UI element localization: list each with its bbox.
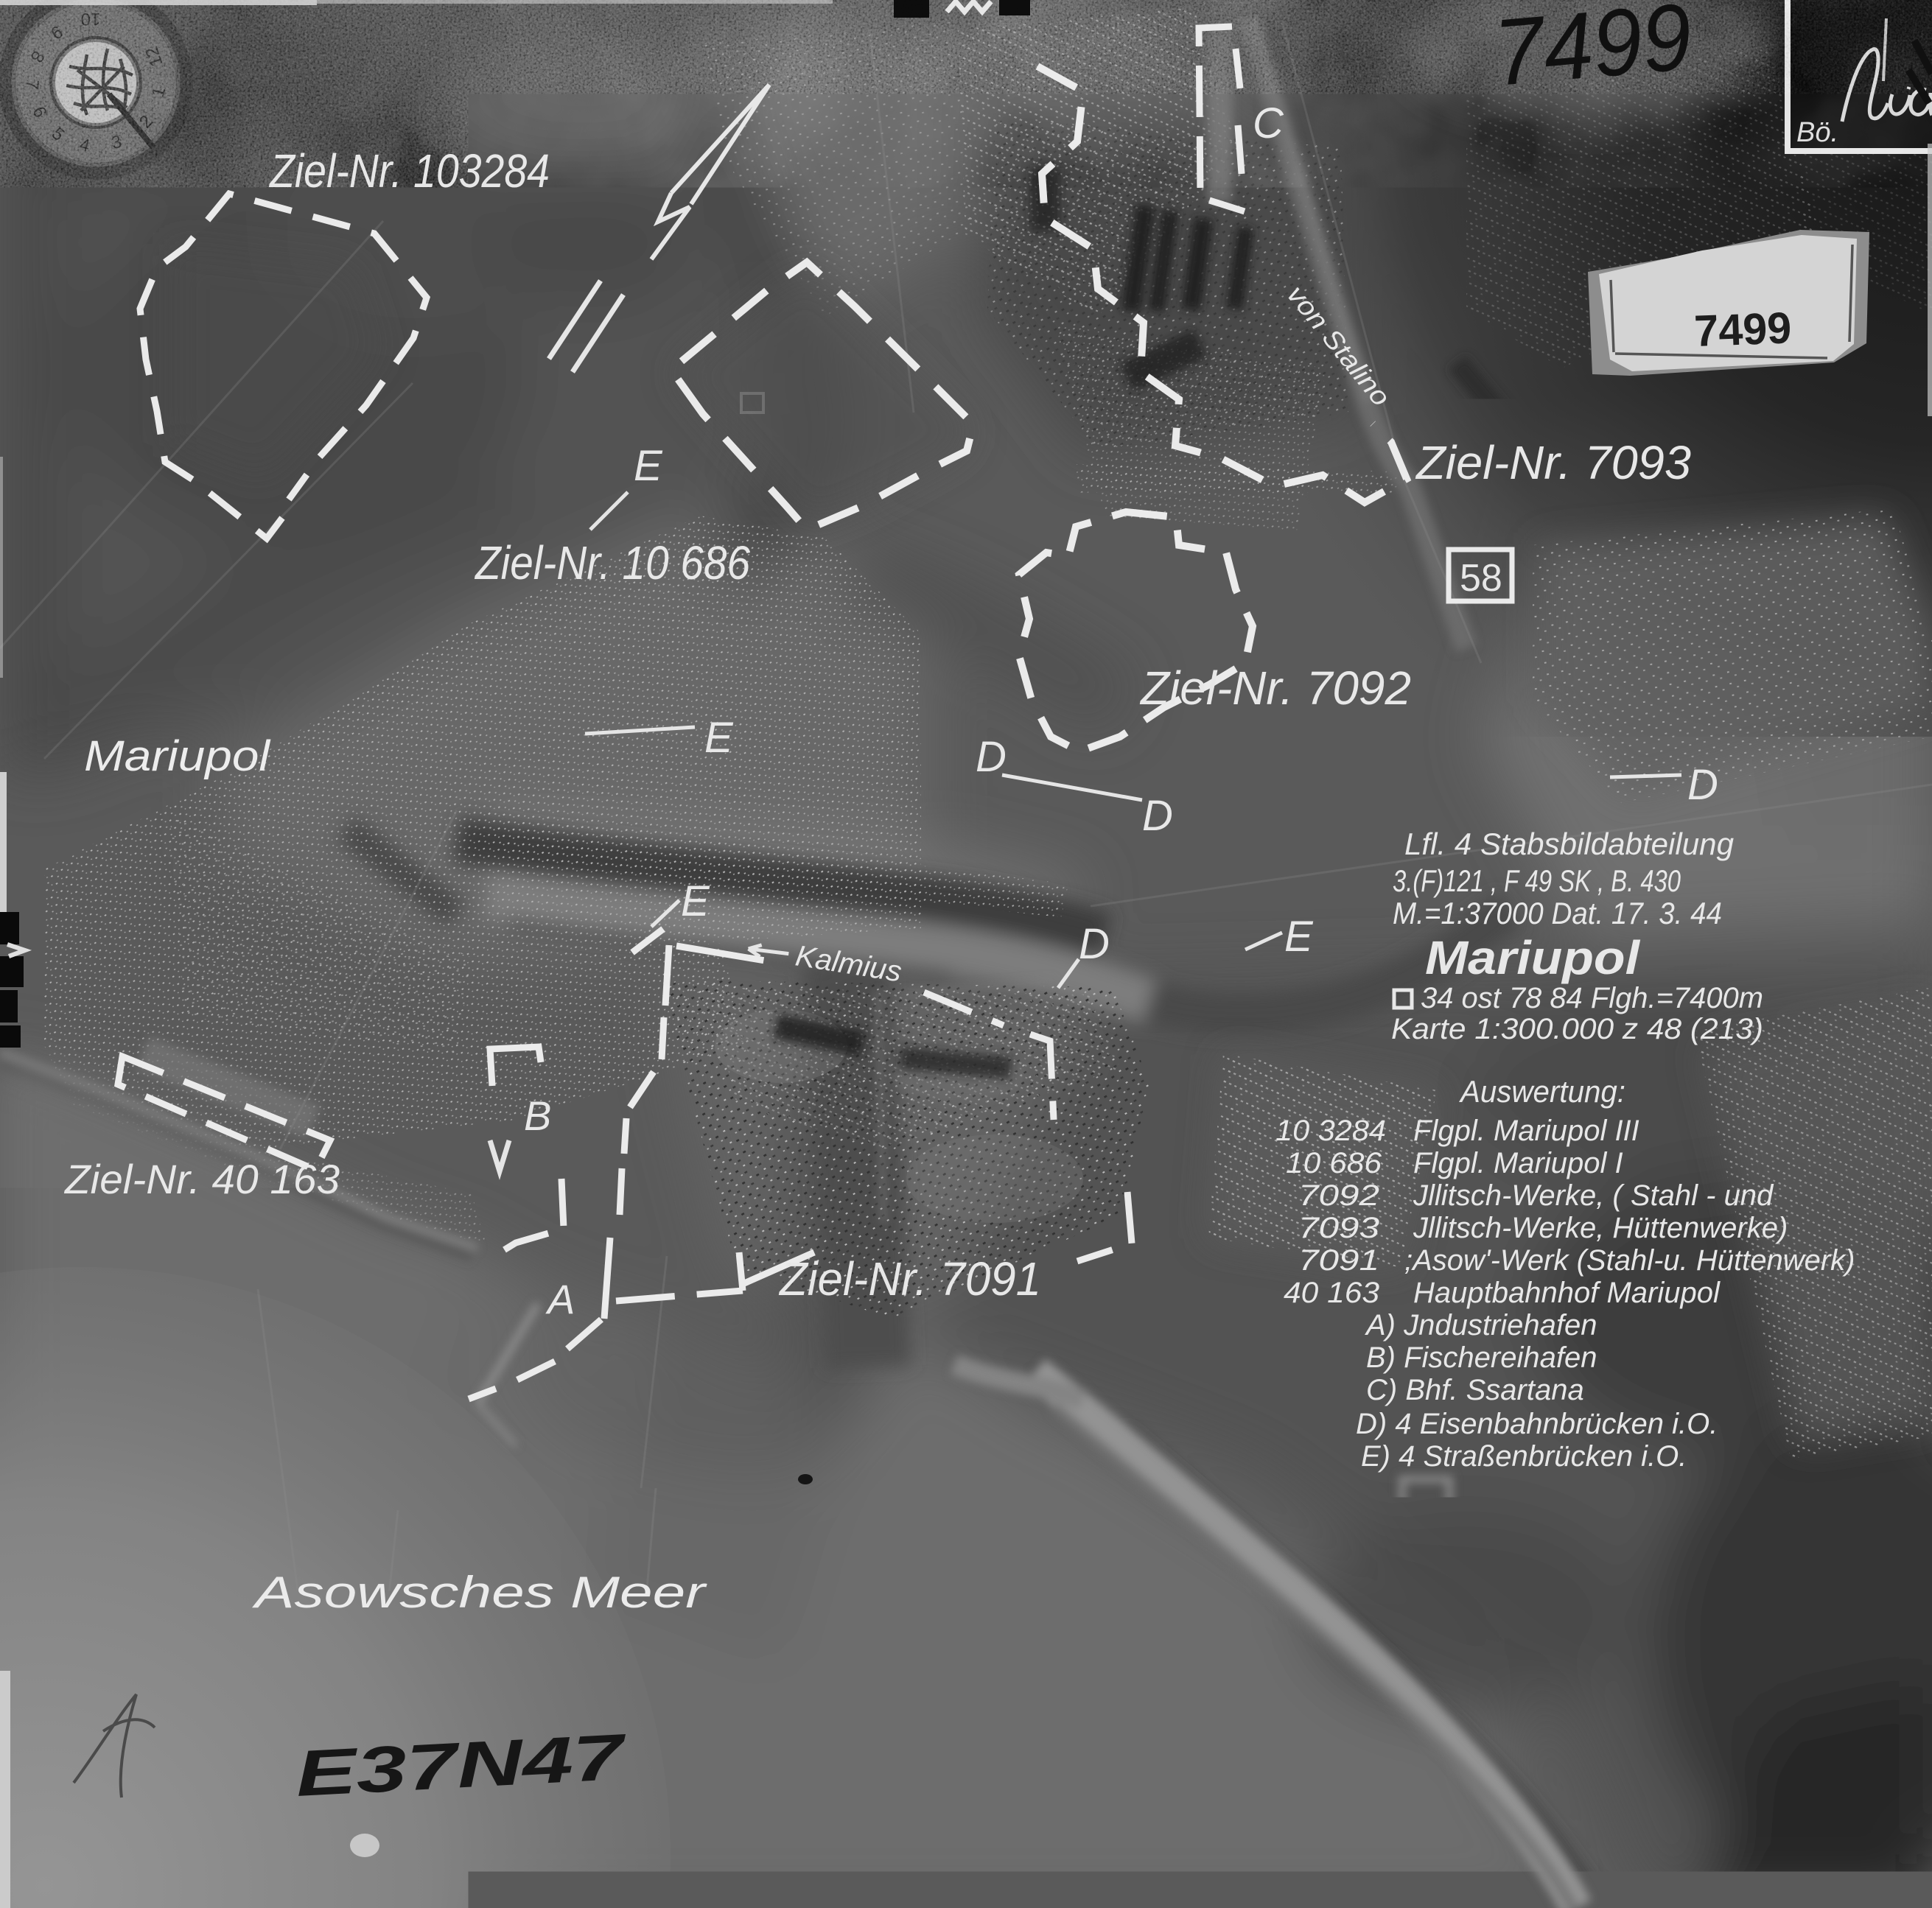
svg-text:;Asow'-Werk (Stahl-u. Hüttenw: ;Asow'-Werk (Stahl-u. Hüttenwerk)	[1404, 1244, 1855, 1277]
svg-text:Ziel-Nr. 10 686: Ziel-Nr. 10 686	[474, 536, 750, 589]
svg-text:D) 4 Eisenbahnbrücken i.O.: D) 4 Eisenbahnbrücken i.O.	[1356, 1408, 1718, 1440]
svg-text:E: E	[1284, 913, 1314, 961]
svg-text:Mariupol: Mariupol	[84, 732, 271, 780]
svg-text:10 686: 10 686	[1286, 1147, 1382, 1179]
svg-text:D: D	[1687, 761, 1718, 809]
svg-text:Mariupol: Mariupol	[1425, 931, 1640, 984]
svg-text:Lfl. 4 Stabsbildabteilung: Lfl. 4 Stabsbildabteilung	[1404, 827, 1734, 861]
svg-text:A: A	[545, 1276, 575, 1322]
svg-text:Hauptbahnhof Mariupol: Hauptbahnhof Mariupol	[1413, 1277, 1721, 1309]
svg-text:Auswertung:: Auswertung:	[1458, 1074, 1625, 1109]
svg-text:D: D	[1079, 920, 1110, 968]
svg-text:Ziel-Nr. 7092: Ziel-Nr. 7092	[1139, 662, 1411, 715]
svg-text:B: B	[524, 1092, 551, 1139]
svg-text:Ziel-Nr. 103284: Ziel-Nr. 103284	[268, 144, 550, 197]
svg-text:Karte 1:300.000 z 48 (213): Karte 1:300.000 z 48 (213)	[1391, 1013, 1763, 1045]
svg-text:E: E	[634, 442, 663, 490]
svg-text:34 ost 78 84 Flgh.=7400m: 34 ost 78 84 Flgh.=7400m	[1421, 982, 1763, 1014]
svg-text:Flgpl. Mariupol I: Flgpl. Mariupol I	[1413, 1147, 1623, 1179]
svg-text:C: C	[1253, 99, 1284, 147]
svg-text:Flgpl. Mariupol III: Flgpl. Mariupol III	[1413, 1115, 1639, 1147]
svg-text:7499: 7499	[1490, 0, 1695, 106]
svg-text:Ziel-Nr. 7091: Ziel-Nr. 7091	[778, 1252, 1041, 1305]
svg-text:D: D	[976, 733, 1007, 781]
svg-text:Jllitsch-Werke, Hüttenwerke): Jllitsch-Werke, Hüttenwerke)	[1413, 1212, 1788, 1244]
svg-text:C) Bhf. Ssartana: C) Bhf. Ssartana	[1366, 1374, 1584, 1406]
svg-text:D: D	[1142, 792, 1173, 840]
svg-text:40 163: 40 163	[1284, 1277, 1379, 1309]
svg-text:A) Jndustriehafen: A) Jndustriehafen	[1365, 1309, 1597, 1341]
svg-text:E: E	[681, 877, 710, 925]
svg-text:B) Fischereihafen: B) Fischereihafen	[1366, 1341, 1597, 1374]
svg-text:Ziel-Nr. 40 163: Ziel-Nr. 40 163	[63, 1156, 340, 1202]
svg-text:Asowsches Meer: Asowsches Meer	[252, 1568, 707, 1617]
svg-text:Anf. Nr. 4499: Anf. Nr. 4499	[1174, 1795, 1356, 1830]
svg-text:7093: 7093	[1298, 1212, 1379, 1244]
svg-text:E: E	[704, 714, 734, 762]
svg-text:3.(F)121 , F 49 SK , B. 430: 3.(F)121 , F 49 SK , B. 430	[1393, 863, 1681, 898]
svg-text:58: 58	[1460, 557, 1502, 600]
svg-text:Jllitsch-Werke, ( Stahl - und: Jllitsch-Werke, ( Stahl - und	[1413, 1179, 1774, 1212]
svg-text:M.=1:37000 Dat. 17. 3. 44: M.=1:37000 Dat. 17. 3. 44	[1393, 896, 1722, 930]
svg-text:E) 4 Straßenbrücken i.O.: E) 4 Straßenbrücken i.O.	[1361, 1440, 1687, 1473]
svg-text:10 3284: 10 3284	[1275, 1115, 1386, 1147]
svg-text:Ziel-Nr. 7093: Ziel-Nr. 7093	[1415, 436, 1691, 489]
svg-text:7092: 7092	[1298, 1179, 1379, 1212]
svg-text:7091: 7091	[1298, 1244, 1379, 1277]
